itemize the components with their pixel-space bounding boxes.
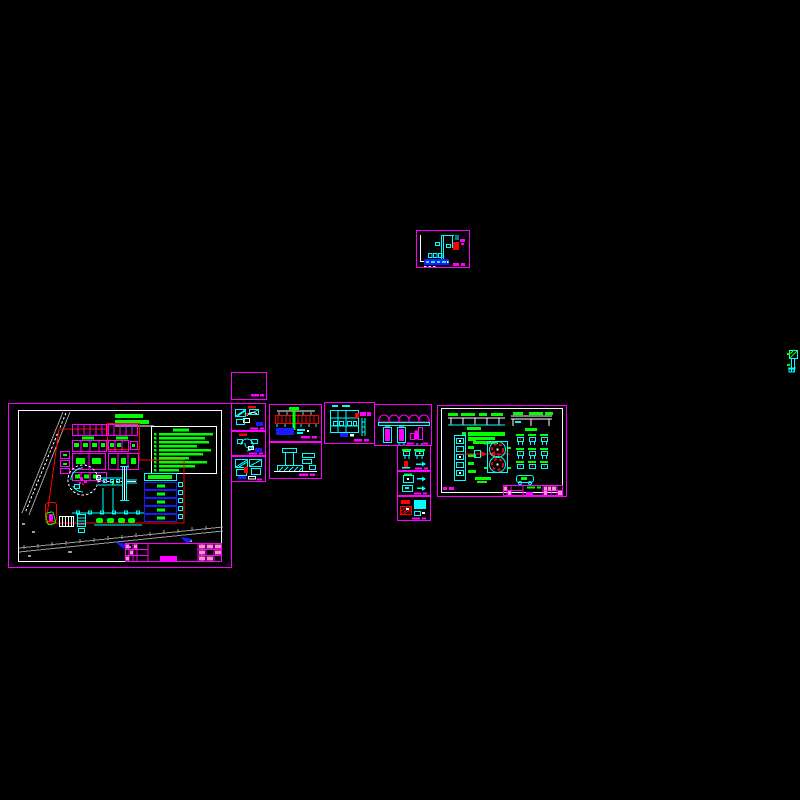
title-stub	[354, 439, 369, 442]
title-stub	[301, 436, 317, 439]
sheet-tank-elevation[interactable]	[374, 404, 432, 446]
canopy-corridor	[98, 467, 137, 512]
schedule-bar	[424, 259, 449, 267]
title-stub	[414, 493, 427, 495]
sheet-fixtures-a[interactable]	[397, 445, 431, 471]
colored-blocks	[340, 412, 371, 437]
lower-road	[19, 523, 223, 557]
title-stub	[415, 468, 428, 470]
fixture-grid	[516, 434, 548, 469]
fixtures	[402, 449, 425, 459]
arch-row	[378, 415, 430, 426]
rack-section	[455, 436, 477, 481]
title-block	[443, 486, 563, 496]
sheet-dispenser-detail[interactable]	[437, 405, 567, 497]
title-stub	[251, 394, 264, 397]
bottom-notes	[475, 477, 491, 483]
red-element	[402, 461, 410, 469]
blue-table	[276, 428, 309, 435]
piping-layout	[330, 405, 365, 436]
sheet-foundation-section[interactable]	[269, 442, 322, 479]
sheet-detail-b[interactable]	[231, 431, 266, 456]
arrows	[417, 477, 426, 492]
fixtures	[403, 474, 414, 492]
tanks	[384, 427, 406, 443]
elevation-left	[448, 413, 505, 430]
curved-detail	[238, 434, 258, 452]
blocks	[401, 500, 427, 516]
title-stub	[257, 479, 262, 481]
blue-block	[256, 422, 263, 426]
hatched-plan	[236, 406, 259, 425]
sheet-detail-c[interactable]	[231, 456, 266, 482]
bottom-blocks	[238, 476, 256, 479]
title-stub	[299, 474, 315, 477]
sheet-section-detail[interactable]	[269, 404, 322, 442]
cad-model-space	[0, 0, 800, 800]
car-sketch	[517, 476, 534, 485]
fixtures-row	[429, 254, 443, 258]
title-block	[125, 544, 222, 562]
t-footing	[274, 449, 317, 472]
blue-block	[255, 448, 262, 452]
service-bays	[145, 474, 183, 522]
sheet-fixtures-c[interactable]	[397, 496, 431, 521]
elevation-right	[511, 412, 553, 431]
arrow	[416, 462, 426, 467]
title-stub	[453, 263, 465, 266]
title-stub	[250, 428, 264, 430]
sheet-piping-plan[interactable]	[324, 402, 375, 444]
sheet-detail-a[interactable]	[231, 403, 266, 431]
upper-road	[22, 412, 70, 515]
sheet-blank-frame[interactable]	[231, 372, 267, 400]
hatched-plan	[236, 460, 262, 476]
hatched-beam	[276, 407, 319, 430]
sheet-pump-room-detail[interactable]	[416, 230, 470, 268]
island-plan	[459, 442, 511, 473]
cyan-riser	[787, 350, 798, 372]
sheet-site-plan[interactable]	[8, 403, 232, 568]
title-stub	[412, 518, 426, 520]
equipment-block	[453, 239, 465, 250]
edge-fragment	[786, 348, 800, 374]
sheet-fixtures-b[interactable]	[397, 471, 431, 496]
title-stub	[249, 453, 263, 455]
